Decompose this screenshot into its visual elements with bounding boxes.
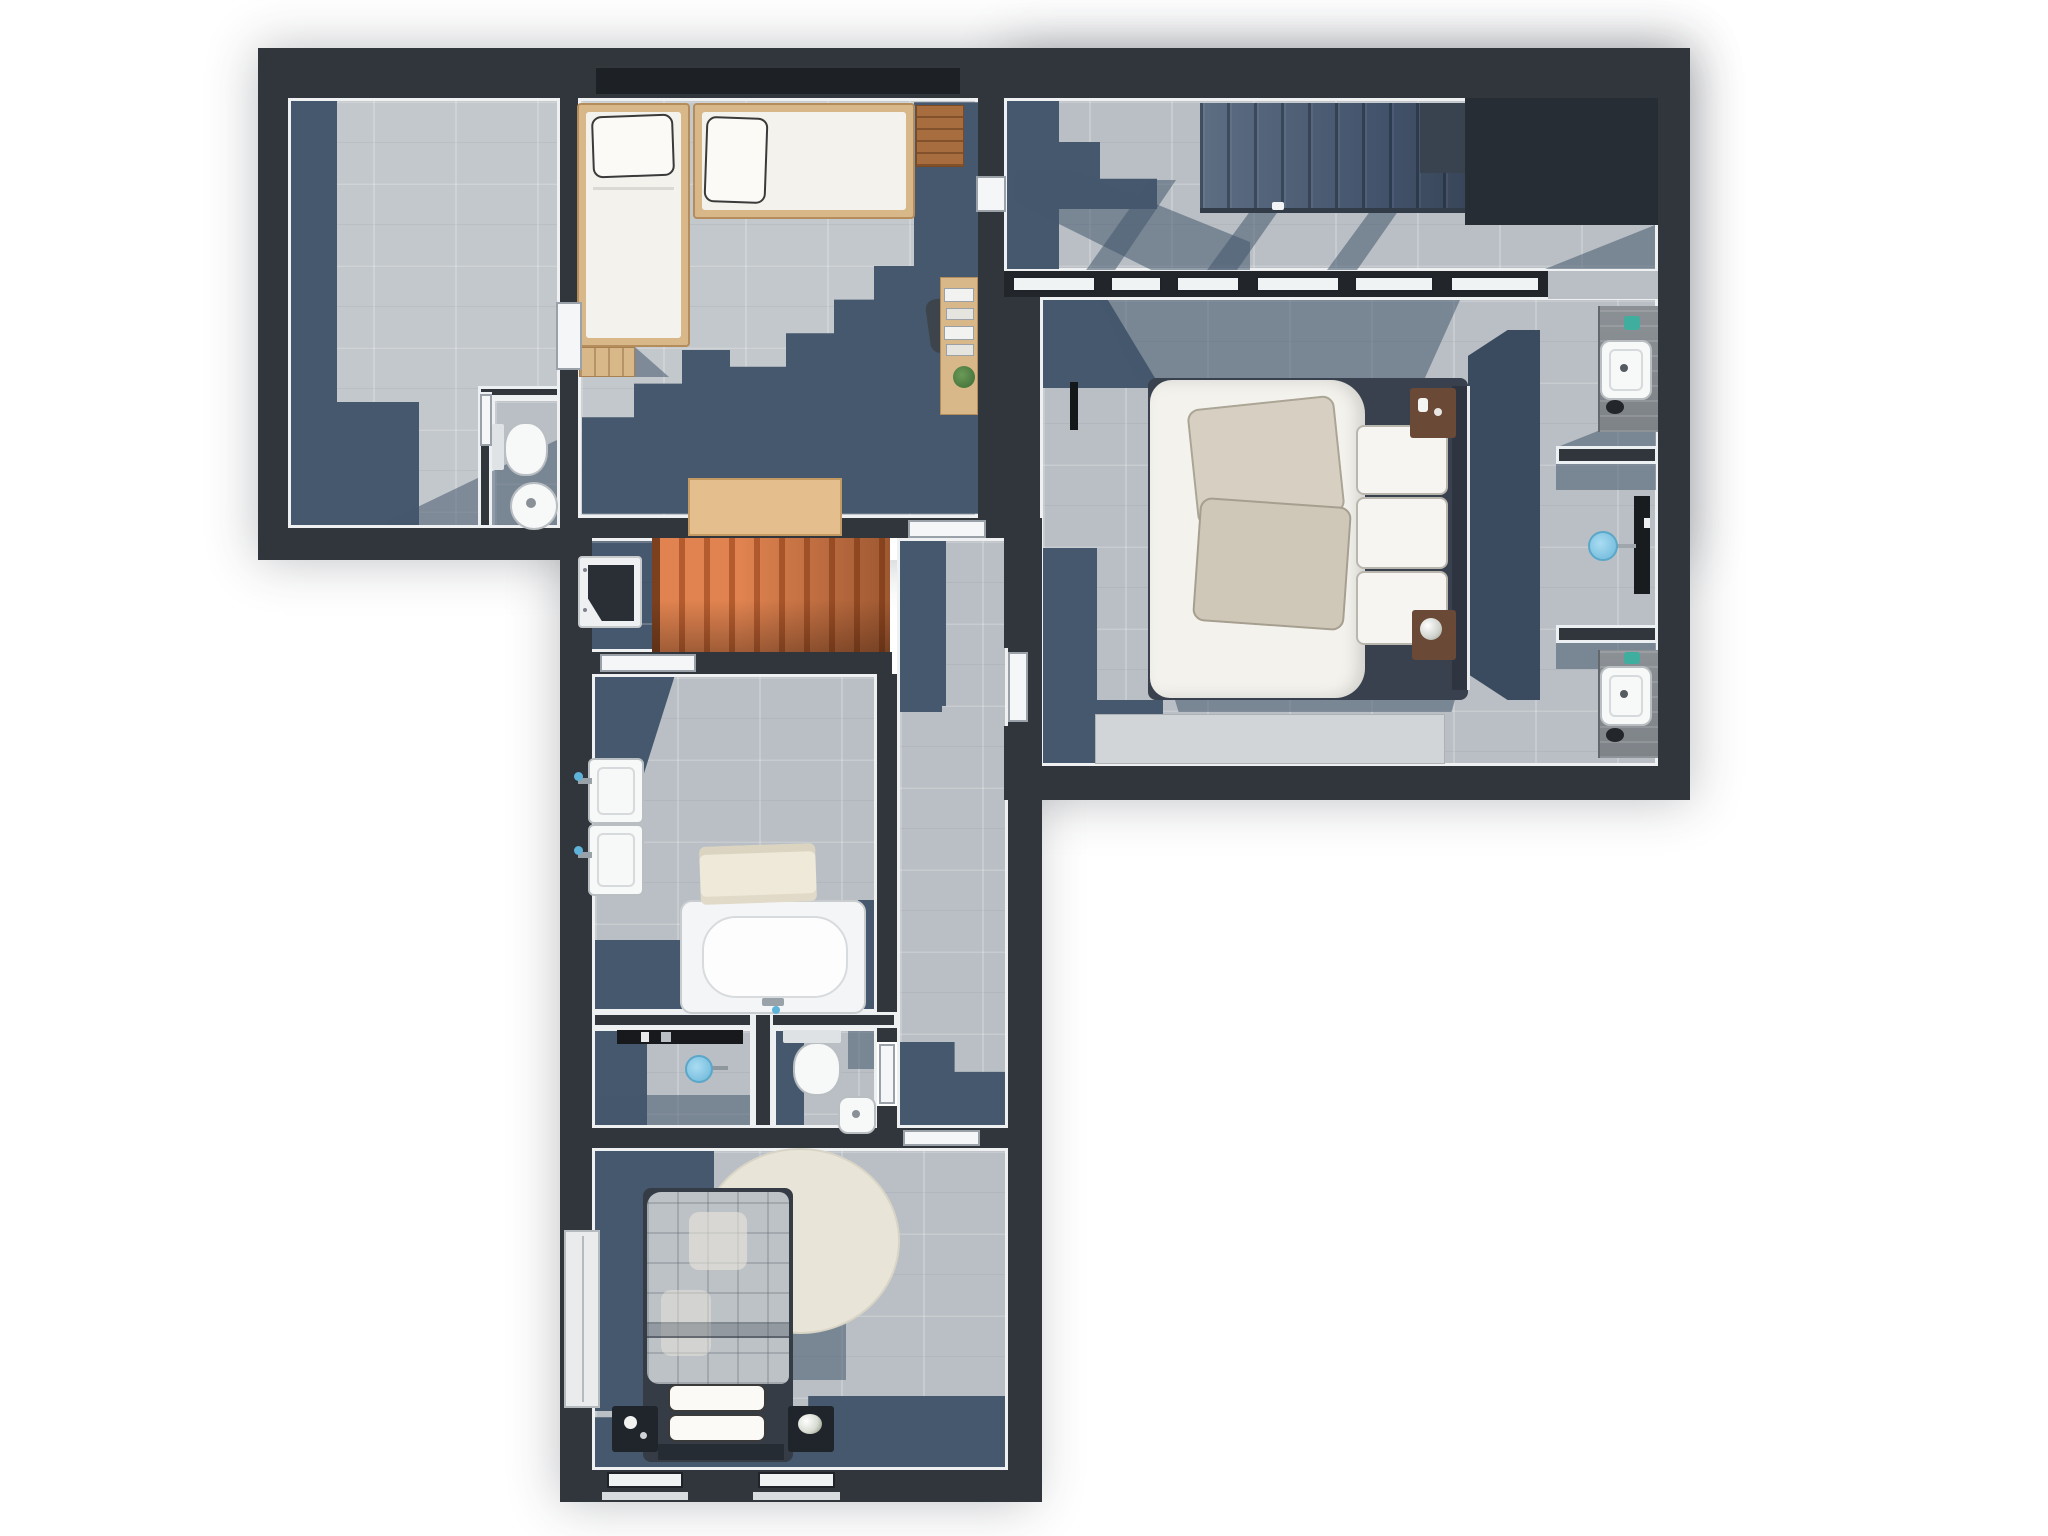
door-bedroom-bottom	[903, 1130, 980, 1146]
faucet-handle-blue	[574, 772, 583, 781]
toilet-mid	[793, 1042, 841, 1096]
drain	[1620, 690, 1628, 698]
duvet-highlight	[689, 1212, 747, 1270]
bed-steps	[579, 347, 635, 377]
door-wc-mid	[879, 1044, 895, 1104]
window-band-top	[596, 66, 960, 94]
bathtub-basin	[702, 916, 848, 998]
drain	[1620, 364, 1628, 372]
stub-shadow	[1556, 464, 1656, 490]
shower-handle	[1644, 518, 1650, 528]
pillow-bottom	[668, 1414, 766, 1442]
lamp	[624, 1416, 637, 1429]
nightstand-lamp	[612, 1406, 658, 1452]
partition-window-pane	[1176, 276, 1240, 292]
partition-window-pane	[1012, 276, 1096, 292]
floor-plan	[0, 0, 2048, 1536]
sheet-fold	[593, 187, 674, 190]
flowers	[1420, 618, 1442, 640]
shower-column	[1634, 496, 1650, 594]
drain	[526, 498, 536, 508]
plant	[953, 366, 975, 388]
accent-tile	[595, 940, 693, 1009]
vanity-sink-top	[1600, 340, 1652, 400]
books	[946, 308, 974, 320]
staircase-orange-shadow	[652, 600, 890, 652]
door-wc-top-leaf	[480, 394, 492, 446]
double-bed-plaid-duvet	[647, 1192, 789, 1384]
wall-master-left-b	[1004, 726, 1040, 800]
door-storage	[556, 302, 582, 370]
partition-window-pane	[1354, 276, 1434, 292]
stairwell-void	[1465, 98, 1658, 225]
wall-tub-apron	[592, 1012, 753, 1028]
partition-window-pane	[1450, 276, 1540, 292]
faucet-handle-blue	[574, 846, 583, 855]
accent-band	[1100, 300, 1460, 380]
basin-round	[510, 482, 558, 530]
wall-storage-divider-b	[560, 370, 578, 528]
tub-handle-blue	[772, 1006, 780, 1014]
pillow	[704, 116, 769, 204]
wall-wc-mid-left	[753, 1012, 773, 1128]
bottle	[1418, 398, 1428, 412]
towel	[699, 843, 817, 905]
toilet-top	[504, 422, 548, 476]
shower-head	[1588, 531, 1618, 561]
toiletry	[661, 1032, 671, 1042]
nightstand-bottom	[1412, 610, 1456, 660]
wall-wc-mid-top	[753, 1012, 897, 1028]
staircase-upper-step	[1420, 103, 1465, 173]
wall-bedroom-landing-a	[978, 98, 1004, 176]
appliance-niche	[578, 556, 642, 628]
flowers	[798, 1414, 822, 1434]
books	[946, 344, 974, 356]
appliance-door	[588, 565, 634, 621]
stair-landing-platform	[688, 478, 842, 536]
partition-window-pane	[1110, 276, 1162, 292]
wall-ensuite-stub-bottom	[1556, 625, 1658, 643]
toiletry-teal	[1624, 652, 1640, 664]
sink-basin	[597, 767, 635, 815]
sink-basin	[597, 833, 635, 887]
wall-corridor-a	[877, 674, 897, 1042]
window-bedroom-bottom-right	[758, 1472, 835, 1488]
door-master-bedroom	[1008, 652, 1028, 722]
handrail-end	[1272, 202, 1284, 210]
stairs-shadow	[900, 600, 942, 712]
duvet-fold	[647, 1322, 789, 1338]
wall-ensuite-stub-top	[1556, 446, 1658, 464]
shower-head-bath	[685, 1055, 713, 1083]
cup	[640, 1432, 647, 1439]
nightstand-top	[1410, 388, 1456, 438]
bathtub	[680, 900, 866, 1014]
wall-exterior-right	[1658, 48, 1690, 800]
toiletry-teal	[1624, 316, 1640, 330]
headboard-bottom	[658, 1444, 784, 1460]
pillow-bottom	[668, 1384, 766, 1412]
pillow-white	[1356, 497, 1448, 569]
wall-exterior-leftwing-bottom	[258, 528, 592, 560]
knob	[583, 608, 587, 612]
low-dresser	[1095, 714, 1445, 764]
wardrobe-divider	[582, 1236, 584, 1402]
wall-corridor-b	[877, 1106, 897, 1128]
drain	[852, 1110, 860, 1118]
pillow-beige	[1192, 497, 1352, 631]
bathroom-sink-1	[588, 758, 644, 824]
door-bedroom-twin	[976, 176, 1006, 212]
pillow	[591, 114, 675, 179]
vanity-sink-bottom	[1600, 666, 1652, 726]
bathroom-sink-2	[588, 824, 644, 896]
soap-dish	[1606, 400, 1624, 414]
books	[944, 288, 974, 302]
wall-master-left-a	[1004, 271, 1040, 648]
accent-tile	[595, 1095, 750, 1125]
window-sill	[602, 1492, 688, 1500]
wooden-bench	[916, 105, 964, 167]
window-bedroom-bottom-left	[607, 1472, 683, 1488]
nightstand-flowers	[788, 1406, 834, 1452]
toilet-cistern	[492, 424, 504, 470]
partition-window-pane	[1256, 276, 1340, 292]
wall-exterior-left	[258, 48, 288, 560]
toilet-mid-cistern	[783, 1030, 841, 1043]
books	[944, 326, 974, 340]
toiletry	[641, 1032, 649, 1042]
door-stairhall	[908, 520, 986, 538]
accent-headboard-band	[1468, 330, 1540, 700]
wall-exterior-top	[258, 48, 1690, 98]
accent-tile	[848, 1031, 874, 1069]
door-bathroom	[600, 654, 696, 672]
ensuite-passage-floor	[1548, 271, 1658, 299]
accent-tile	[291, 402, 419, 525]
window-sill	[753, 1492, 840, 1500]
soap-dish	[1606, 728, 1624, 742]
basin-small	[838, 1096, 876, 1134]
wall-tv	[1070, 382, 1078, 430]
tub-faucet	[762, 998, 784, 1006]
glass	[1434, 408, 1442, 416]
wall-bedroom-landing-b	[978, 212, 1004, 535]
shower-shelf	[617, 1030, 743, 1044]
wall-storage-divider-a	[560, 98, 578, 302]
knob	[583, 568, 587, 572]
wardrobe	[564, 1230, 600, 1408]
wall-exterior-rightwing-bottom	[1008, 766, 1690, 800]
